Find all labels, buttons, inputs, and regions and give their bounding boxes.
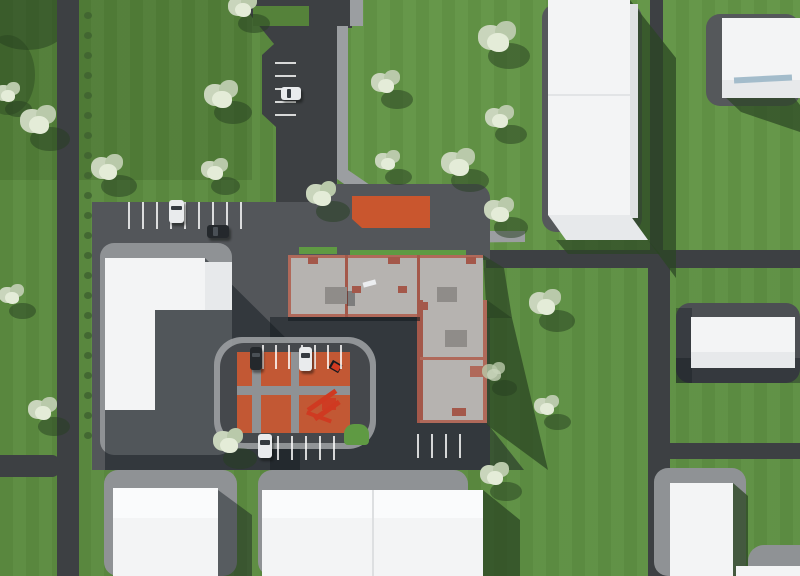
- roof-red-5: [398, 286, 407, 293]
- car-dark-playground: [250, 347, 262, 370]
- parking-row-playground-south-tick: [277, 436, 279, 460]
- parking-row-playground-south-tick: [319, 436, 321, 460]
- wing-divider: [420, 357, 487, 360]
- tree-canopy: [537, 299, 556, 315]
- parking-row-top-road-tick: [275, 62, 296, 64]
- tree-canopy: [487, 369, 500, 380]
- slab-south-edge: [288, 317, 420, 321]
- tree-canopy: [5, 292, 19, 304]
- bush: [84, 272, 92, 279]
- building-top-right: [548, 0, 630, 215]
- car-dark-north-lot-glass: [213, 227, 217, 236]
- bush: [84, 372, 92, 379]
- bush: [84, 12, 92, 19]
- wing-south-parapet: [420, 420, 487, 423]
- building-right-middle: [691, 317, 795, 357]
- bush: [84, 412, 92, 419]
- building-left-main: [105, 258, 205, 310]
- parking-row-playground-north-tick: [288, 345, 290, 369]
- parking-row-east-tick: [431, 434, 433, 458]
- tree-shadow: [492, 380, 517, 396]
- roof-red-1: [308, 257, 318, 264]
- bush: [84, 192, 92, 199]
- parking-row-north-tick: [128, 202, 130, 229]
- bush: [84, 232, 92, 239]
- tree-canopy: [99, 164, 118, 180]
- bush: [84, 32, 92, 39]
- green-strip-1: [299, 247, 337, 254]
- parking-row-north-tick: [156, 202, 158, 229]
- roof-red-4: [352, 286, 361, 293]
- parking-row-north-tick: [198, 202, 200, 229]
- car-white-north-lot: [169, 200, 184, 223]
- tree-canopy: [313, 191, 331, 206]
- parking-row-playground-north-tick: [340, 345, 342, 369]
- building-top-right-east-face: [630, 4, 638, 218]
- play-equipment-deck: [322, 398, 336, 410]
- roof-red-8: [420, 302, 428, 310]
- car-white-playground: [299, 347, 312, 371]
- site-plan-canvas: [0, 0, 800, 576]
- car-dark-north-lot: [207, 225, 229, 238]
- building-top-right-seam: [548, 94, 630, 96]
- bush: [84, 432, 92, 439]
- parking-row-playground-south-tick: [291, 436, 293, 460]
- bush: [84, 72, 92, 79]
- tree-canopy: [207, 166, 222, 179]
- building-left-south-wing: [105, 310, 155, 410]
- parking-row-playground-south-tick: [333, 436, 335, 460]
- tree-canopy: [212, 91, 232, 108]
- roof-box-1: [325, 287, 347, 304]
- parking-row-playground-north-tick: [314, 345, 316, 369]
- parking-row-top-road-tick: [275, 101, 296, 103]
- roof-box-1-shadow: [347, 291, 355, 306]
- roof-red-3: [466, 257, 476, 264]
- building-bottom-left-roof: [113, 488, 218, 518]
- tree-canopy: [487, 471, 504, 485]
- bush: [84, 212, 92, 219]
- car-white-playground-glass: [301, 353, 310, 358]
- bush: [84, 172, 92, 179]
- parking-row-playground-north-tick: [275, 345, 277, 369]
- tree-canopy: [487, 33, 509, 52]
- bush: [84, 312, 92, 319]
- bush: [84, 112, 92, 119]
- bush: [84, 252, 92, 259]
- parking-row-east-tick: [445, 434, 447, 458]
- car-white-north-lot-glass: [171, 206, 182, 211]
- building-right-middle-face: [691, 352, 795, 368]
- car-white-top-road-glass: [287, 89, 291, 98]
- tree-canopy: [491, 207, 509, 222]
- parking-row-north-tick: [240, 202, 242, 229]
- building-left-annex: [205, 262, 232, 310]
- road-bottom-right: [664, 443, 800, 459]
- tree-canopy: [492, 114, 509, 128]
- shadow-right-middle-west: [676, 308, 692, 383]
- roof-box-2: [437, 287, 457, 302]
- bush: [84, 132, 92, 139]
- car-white-playground-south-glass: [260, 440, 270, 445]
- road-left-vertical: [57, 0, 79, 576]
- building-bottom-right: [670, 483, 733, 576]
- roof-red-7: [452, 408, 466, 416]
- bush: [84, 352, 92, 359]
- parking-row-east-tick: [417, 434, 419, 458]
- bush: [84, 332, 92, 339]
- tree-canopy: [378, 79, 395, 93]
- car-dark-playground-glass: [252, 353, 260, 358]
- parking-row-playground-north-tick: [262, 345, 264, 369]
- tree-canopy: [449, 159, 469, 176]
- roof-box-3: [445, 330, 467, 347]
- parapet-divider-1: [345, 255, 348, 317]
- parking-row-top-road-tick: [275, 75, 296, 77]
- apartment-wing-roof: [420, 300, 487, 423]
- road-bottom-left: [0, 455, 60, 477]
- roof-red-2: [388, 257, 400, 264]
- bush: [84, 92, 92, 99]
- building-bottom-center-seam: [372, 490, 374, 576]
- parking-row-top-road-tick: [275, 114, 296, 116]
- parking-row-north-tick: [142, 202, 144, 229]
- tree-canopy: [35, 406, 52, 420]
- sidewalk-top-edge: [350, 0, 363, 26]
- bush: [84, 392, 92, 399]
- car-white-top-road: [281, 87, 301, 100]
- wing-east-parapet: [483, 300, 487, 423]
- sidewalk-top-road: [337, 26, 348, 174]
- playground-green-patch: [344, 424, 369, 445]
- parking-row-north-tick: [184, 202, 186, 229]
- car-white-playground-south: [258, 434, 272, 458]
- parking-row-east-tick: [459, 434, 461, 458]
- building-corner-bottom-right: [736, 566, 800, 576]
- tree-canopy: [381, 158, 395, 170]
- tree-canopy: [1, 90, 15, 102]
- parking-row-playground-south-tick: [305, 436, 307, 460]
- tree-canopy: [540, 403, 554, 415]
- bush: [84, 152, 92, 159]
- bush: [84, 292, 92, 299]
- parapet-west: [288, 255, 291, 317]
- tree-canopy: [220, 438, 238, 453]
- parking-row-playground-north-tick: [327, 345, 329, 369]
- bush: [84, 52, 92, 59]
- tree-canopy: [235, 3, 252, 17]
